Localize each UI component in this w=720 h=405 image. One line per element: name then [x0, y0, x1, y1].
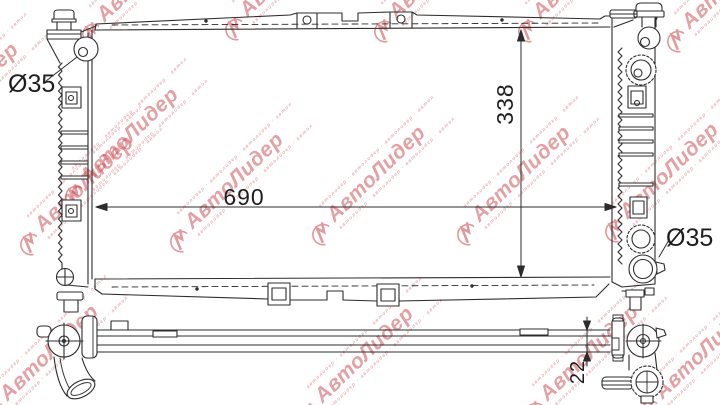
right-fitting — [602, 315, 666, 403]
front-view — [47, 3, 665, 312]
left-tank — [47, 10, 98, 312]
right-tank — [610, 3, 665, 310]
page: автолидер · автолидер · автолидер · авто… — [0, 0, 720, 405]
bottom-rail — [95, 277, 610, 306]
bottom-view — [37, 315, 666, 403]
top-rail — [95, 12, 612, 30]
left-fitting — [37, 316, 98, 403]
radiator-drawing — [0, 0, 720, 405]
dimension-lines — [46, 30, 669, 366]
